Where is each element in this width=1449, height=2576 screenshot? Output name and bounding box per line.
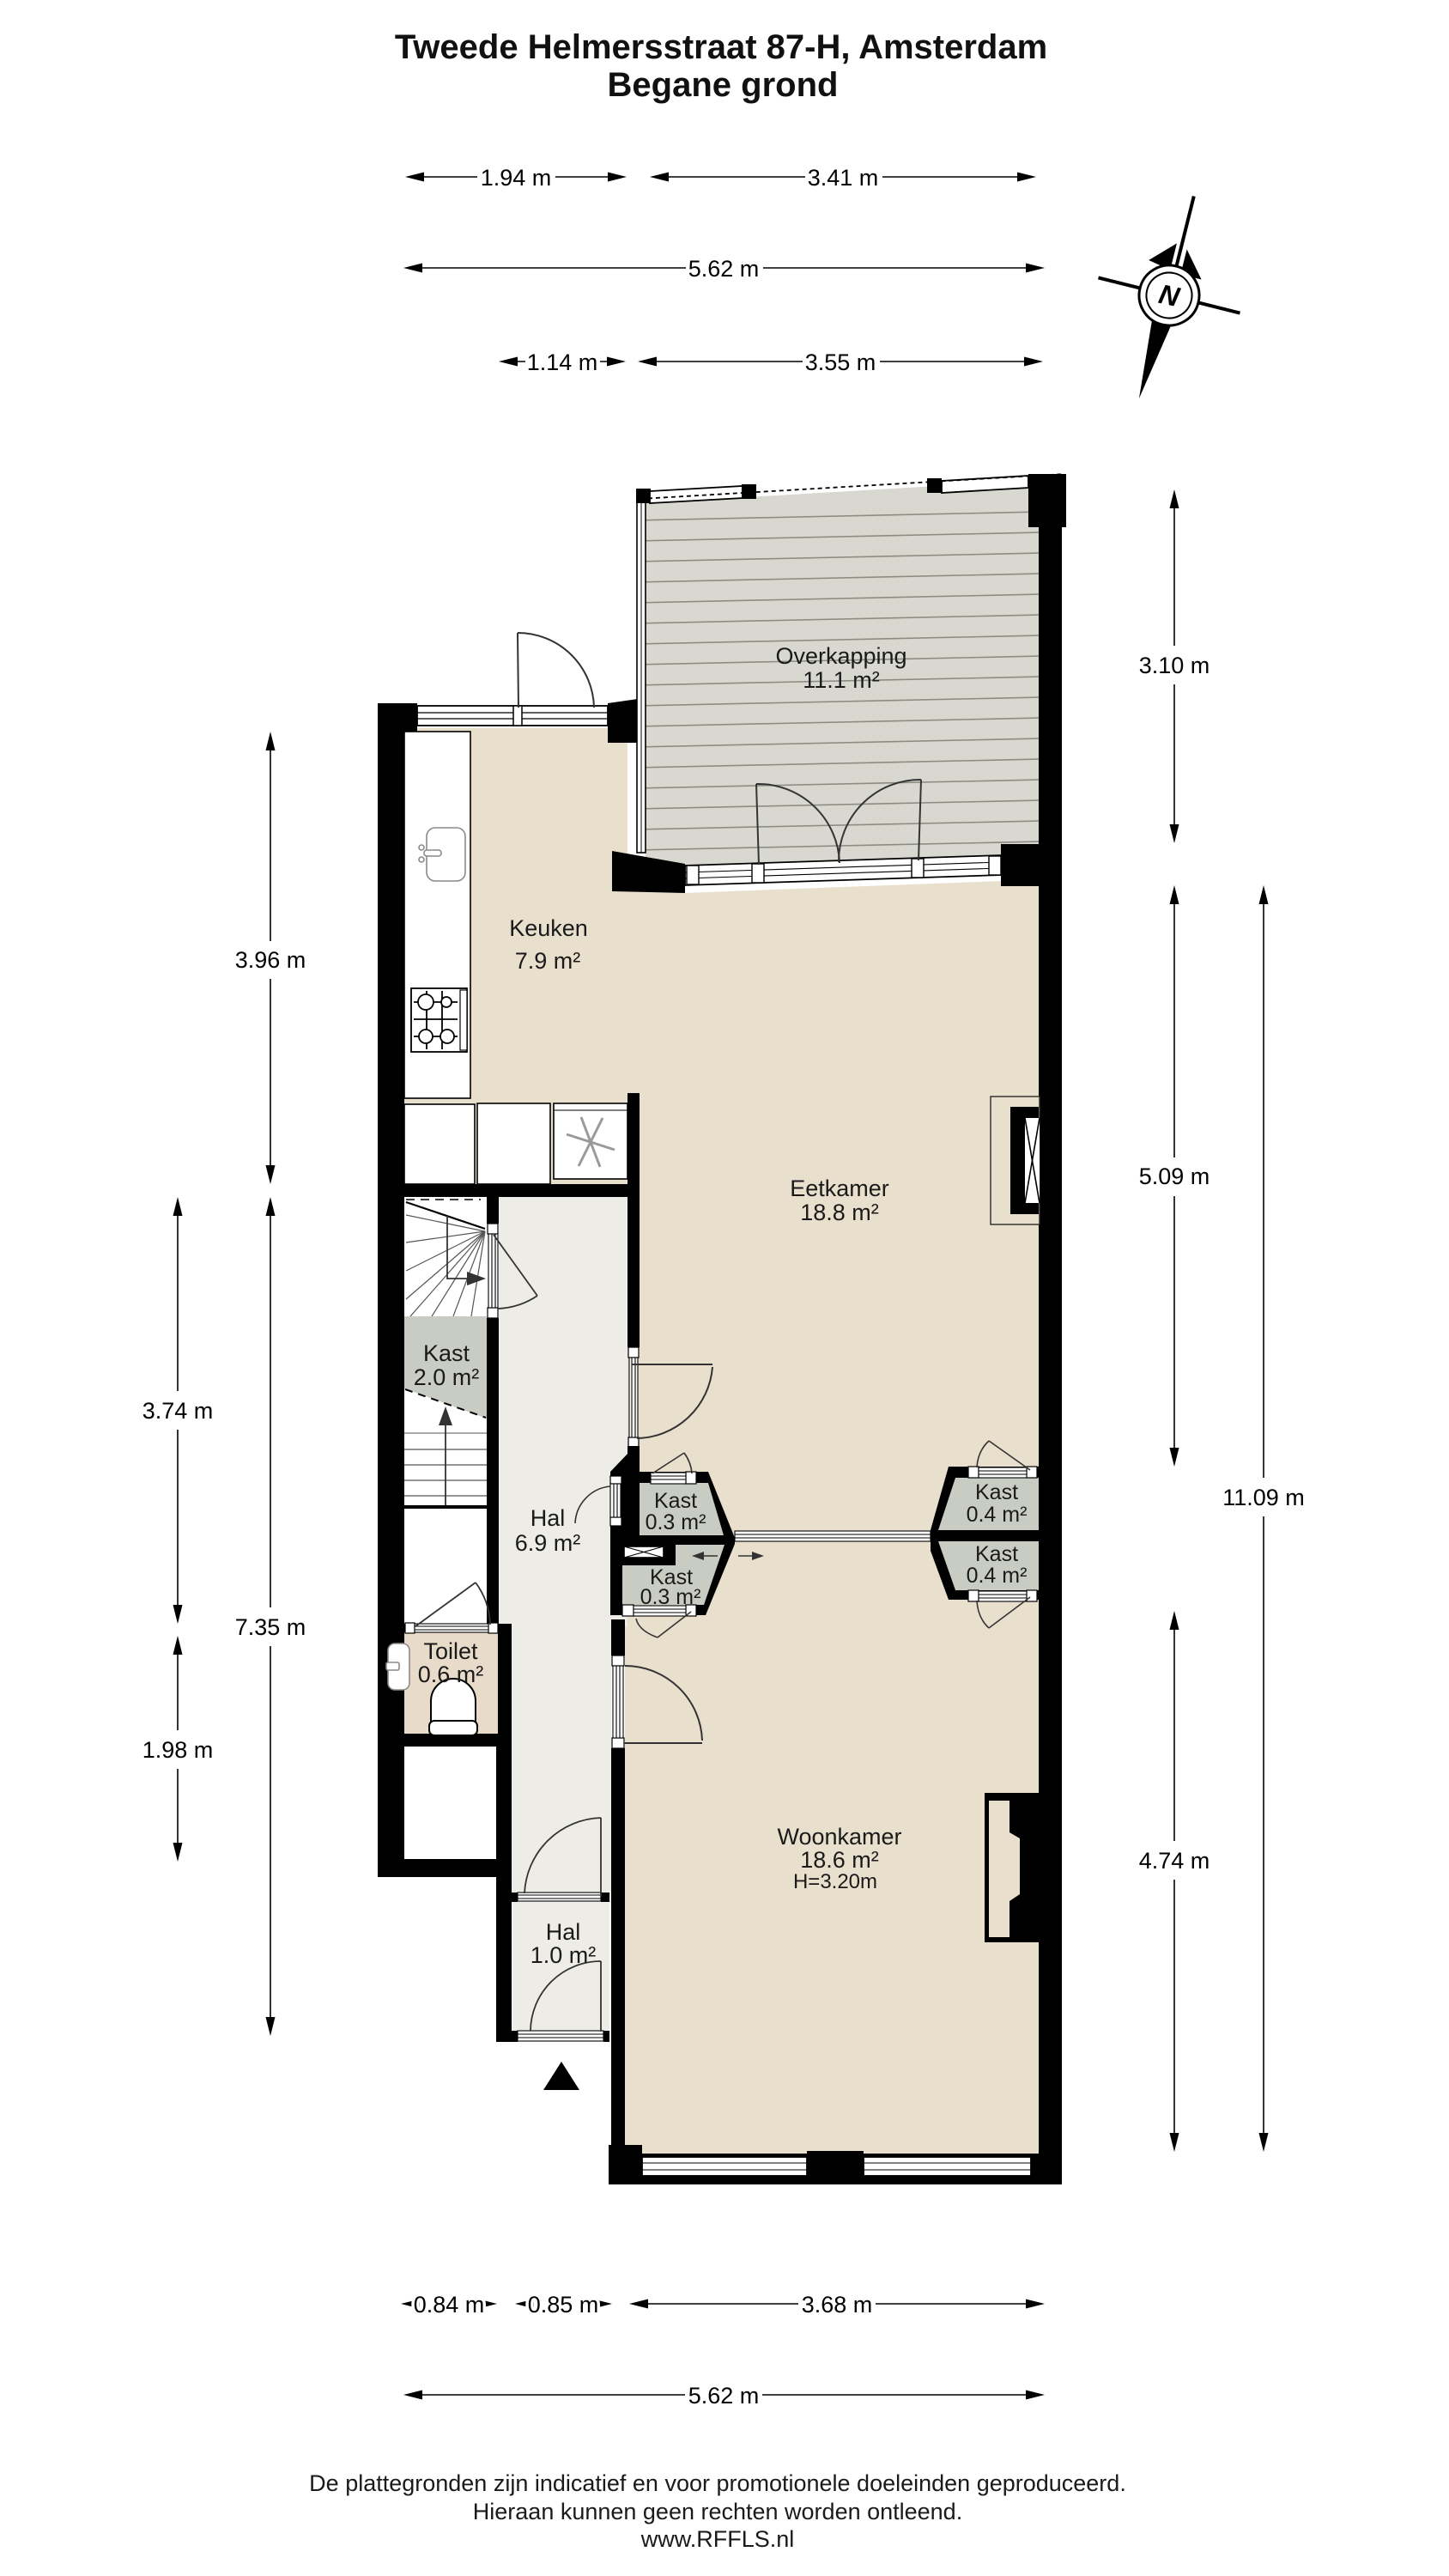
svg-text:H=3.20m: H=3.20m <box>793 1870 877 1893</box>
svg-text:Hal: Hal <box>530 1505 566 1531</box>
svg-text:5.62 m: 5.62 m <box>688 2383 760 2409</box>
svg-text:5.09 m: 5.09 m <box>1139 1163 1210 1189</box>
svg-text:1.98 m: 1.98 m <box>142 1737 214 1763</box>
svg-text:1.14 m: 1.14 m <box>527 349 598 375</box>
svg-text:De plattegronden zijn indicati: De plattegronden zijn indicatief en voor… <box>309 2470 1126 2496</box>
svg-text:18.8 m²: 18.8 m² <box>800 1200 879 1225</box>
svg-text:7.9 m²: 7.9 m² <box>515 948 581 974</box>
svg-text:0.84 m: 0.84 m <box>414 2292 485 2318</box>
svg-text:Toilet: Toilet <box>423 1638 478 1664</box>
svg-text:0.85 m: 0.85 m <box>528 2292 599 2318</box>
svg-text:Kast: Kast <box>423 1340 470 1366</box>
svg-text:1.0 m²: 1.0 m² <box>530 1942 597 1968</box>
svg-text:0.3 m²: 0.3 m² <box>646 1510 706 1534</box>
svg-text:3.74 m: 3.74 m <box>142 1398 214 1424</box>
svg-text:0.3 m²: 0.3 m² <box>640 1585 701 1609</box>
svg-text:4.74 m: 4.74 m <box>1139 1848 1210 1874</box>
svg-text:0.4 m²: 0.4 m² <box>967 1564 1028 1588</box>
svg-text:0.4 m²: 0.4 m² <box>967 1503 1028 1527</box>
svg-text:3.55 m: 3.55 m <box>805 349 876 375</box>
svg-text:6.9 m²: 6.9 m² <box>515 1530 581 1556</box>
svg-text:Hal: Hal <box>546 1919 581 1945</box>
svg-text:Overkapping: Overkapping <box>775 643 906 669</box>
svg-text:Kast: Kast <box>975 1542 1018 1566</box>
svg-text:1.94 m: 1.94 m <box>481 165 552 191</box>
svg-text:3.68 m: 3.68 m <box>802 2292 873 2318</box>
svg-text:2.0 m²: 2.0 m² <box>414 1364 480 1390</box>
svg-text:7.35 m: 7.35 m <box>235 1614 306 1640</box>
svg-text:Keuken: Keuken <box>509 915 588 941</box>
svg-text:Tweede Helmersstraat 87-H, Ams: Tweede Helmersstraat 87-H, Amsterdam <box>395 28 1047 66</box>
svg-text:18.6 m²: 18.6 m² <box>800 1847 879 1873</box>
svg-text:3.96 m: 3.96 m <box>235 947 306 973</box>
svg-text:Hieraan kunnen geen rechten wo: Hieraan kunnen geen rechten worden ontle… <box>473 2499 962 2524</box>
svg-text:11.1 m²: 11.1 m² <box>803 667 880 693</box>
svg-text:11.09 m: 11.09 m <box>1222 1485 1305 1510</box>
svg-text:Woonkamer: Woonkamer <box>777 1824 901 1850</box>
svg-text:0.6 m²: 0.6 m² <box>418 1662 484 1687</box>
svg-text:www.RFFLS.nl: www.RFFLS.nl <box>640 2526 795 2552</box>
svg-text:Eetkamer: Eetkamer <box>790 1176 889 1201</box>
svg-text:Begane grond: Begane grond <box>608 66 839 104</box>
svg-text:3.41 m: 3.41 m <box>808 165 879 191</box>
svg-text:3.10 m: 3.10 m <box>1139 653 1210 678</box>
svg-text:5.62 m: 5.62 m <box>688 256 760 282</box>
svg-text:Kast: Kast <box>975 1480 1018 1504</box>
svg-text:Kast: Kast <box>654 1489 697 1513</box>
